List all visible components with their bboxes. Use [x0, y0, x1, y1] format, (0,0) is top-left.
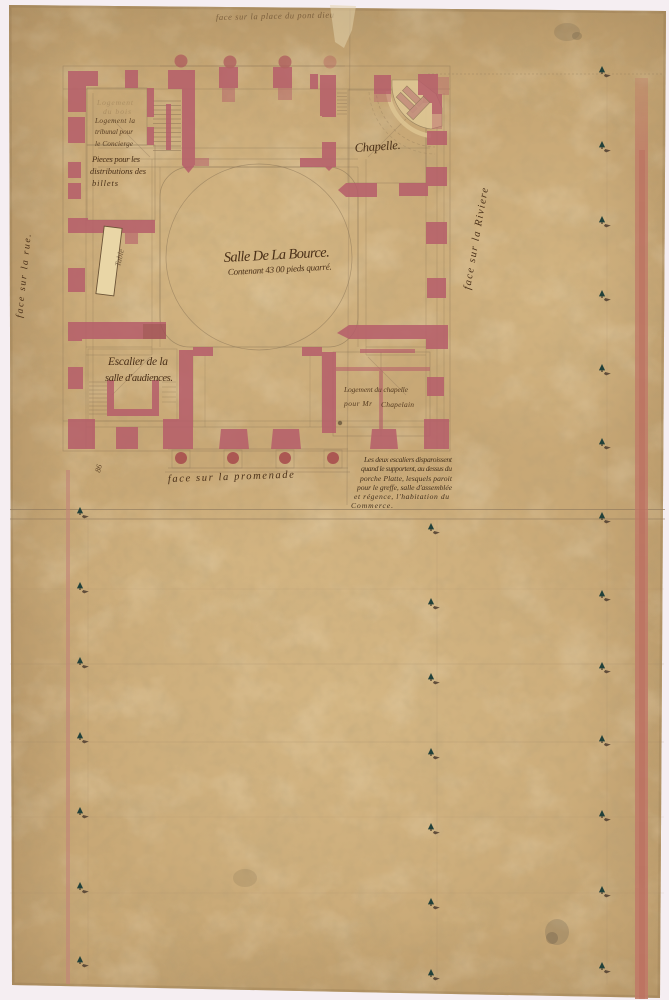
svg-text:porche Platte, lesquels paroit: porche Platte, lesquels paroit: [359, 474, 453, 483]
svg-text:Escalier de la: Escalier de la: [107, 356, 168, 368]
svg-text:billets: billets: [92, 178, 119, 188]
svg-text:Logement la: Logement la: [94, 117, 135, 125]
svg-text:Chapelain: Chapelain: [381, 400, 414, 409]
svg-text:quand le supportent, au dessus: quand le supportent, au dessus du: [361, 464, 452, 473]
svg-text:Logement: Logement: [96, 98, 134, 107]
svg-text:distributions des: distributions des: [90, 166, 147, 176]
svg-text:Commerce.: Commerce.: [351, 501, 393, 510]
svg-text:pour le greffe, salle d'assemb: pour le greffe, salle d'assemblée: [356, 483, 453, 492]
svg-text:tribunal pour: tribunal pour: [95, 128, 133, 136]
svg-text:du bois: du bois: [103, 107, 131, 116]
svg-text:salle d'audiences.: salle d'audiences.: [105, 373, 173, 384]
svg-text:et régence, l'habitation du: et régence, l'habitation du: [354, 492, 449, 501]
svg-text:Logement du chapelle: Logement du chapelle: [343, 385, 409, 394]
svg-text:pour Mr: pour Mr: [343, 399, 372, 408]
svg-text:Les deux escaliers disparoisse: Les deux escaliers disparoissent: [363, 455, 453, 464]
svg-text:Pieces pour les: Pieces pour les: [91, 154, 141, 164]
svg-text:le Concierge: le Concierge: [95, 140, 134, 148]
